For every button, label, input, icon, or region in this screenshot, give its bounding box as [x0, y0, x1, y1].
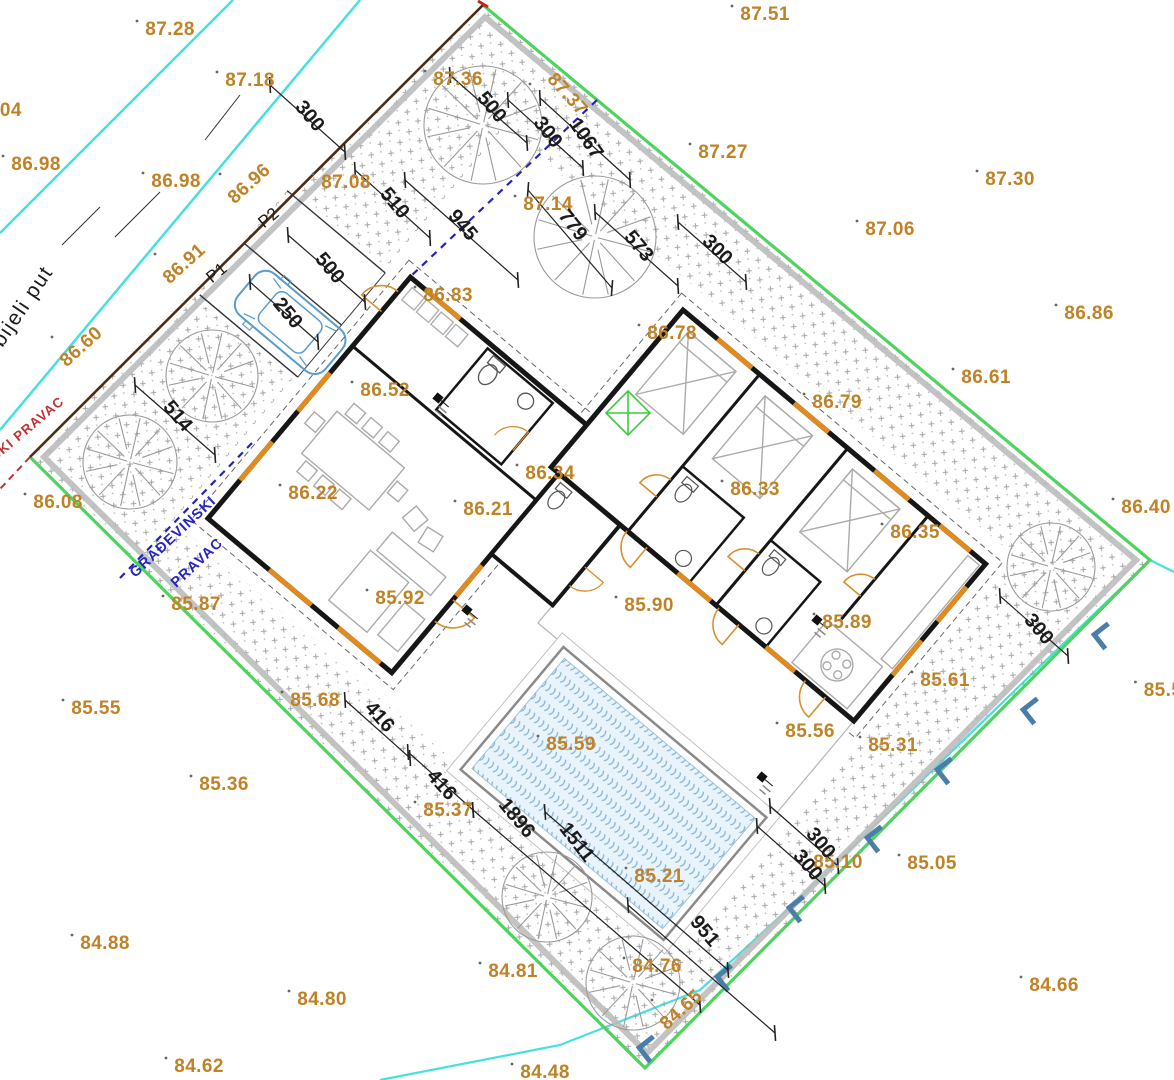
elevation-label: 87.27 — [698, 142, 748, 163]
elevation-point-dot — [537, 735, 540, 738]
elevation-label: 85.61 — [920, 670, 970, 691]
elevation-label: 86.34 — [525, 463, 575, 484]
elevation-point-dot — [288, 990, 291, 993]
elevation-label: 87.51 — [740, 4, 790, 25]
elevation-point-dot — [651, 999, 654, 1002]
elevation-point-dot — [162, 595, 165, 598]
elevation-point-dot — [856, 220, 859, 223]
leader-lines — [62, 95, 240, 245]
elevation-point-dot — [976, 170, 979, 173]
elevation-point-dot — [2, 155, 5, 158]
elevation-point-dot — [142, 172, 145, 175]
elevation-label: 85.87 — [171, 594, 221, 615]
elevation-point-dot — [281, 691, 284, 694]
elevation-label: 84.76 — [632, 956, 682, 977]
elevation-label: 86.96 — [224, 160, 275, 209]
elevation-label: 86.98 — [151, 171, 201, 192]
dimension-label: 300 — [290, 96, 328, 136]
site-plan-drawing: 87.2887.5187.1887.3687.3787.2787.30.0486… — [0, 0, 1174, 1080]
elevation-label: 86.52 — [360, 380, 410, 401]
elevation-point-dot — [859, 736, 862, 739]
elevation-label: 84.48 — [520, 1062, 570, 1080]
elevation-label: 85.36 — [199, 774, 249, 795]
elevation-point-dot — [71, 934, 74, 937]
elevation-label: 85.21 — [634, 866, 684, 887]
elevation-point-dot — [516, 464, 519, 467]
elevation-label: 85.68 — [290, 690, 340, 711]
elevation-point-dot — [312, 173, 315, 176]
elevation-point-dot — [366, 589, 369, 592]
elevation-point-dot — [190, 775, 193, 778]
elevation-label: 85.92 — [375, 588, 425, 609]
elevation-label: 85.05 — [907, 853, 957, 874]
elevation-label: 86.08 — [33, 492, 83, 513]
elevation-point-dot — [514, 195, 517, 198]
site-plan-canvas: 87.2887.5187.1887.3687.3787.2787.30.0486… — [0, 0, 1174, 1080]
elevation-point-dot — [165, 1057, 168, 1060]
elevation-point-dot — [414, 286, 417, 289]
regulation-dashed-line — [0, 457, 30, 489]
elevation-point-dot — [813, 613, 816, 616]
elevation-point-dot — [776, 722, 779, 725]
elevation-label: 85.89 — [822, 612, 872, 633]
elevation-label: 84.81 — [488, 961, 538, 982]
elevation-label: 86.86 — [1064, 303, 1114, 324]
elevation-label: 86.79 — [812, 392, 862, 413]
elevation-point-dot — [1134, 681, 1137, 684]
elevation-label: 86.21 — [463, 499, 513, 520]
elevation-label: .04 — [0, 100, 22, 121]
elevation-label: 86.91 — [159, 240, 210, 289]
elevation-point-dot — [615, 596, 618, 599]
elevation-point-dot — [898, 854, 901, 857]
elevation-label: 86.33 — [730, 479, 780, 500]
elevation-label: 85.55 — [71, 698, 121, 719]
elevation-point-dot — [638, 324, 641, 327]
elevation-point-dot — [154, 253, 157, 256]
elevation-point-dot — [881, 523, 884, 526]
elevation-point-dot — [216, 71, 219, 74]
elevation-label: 84.80 — [297, 989, 347, 1010]
elevation-point-dot — [731, 5, 734, 8]
elevation-label: 86.83 — [423, 285, 473, 306]
elevation-label: 84.62 — [174, 1056, 224, 1077]
benchmark-icon — [457, 604, 482, 628]
elevation-label: 87.08 — [321, 172, 371, 193]
elevation-point-dot — [454, 500, 457, 503]
elevation-label: 84.66 — [1029, 975, 1079, 996]
elevation-label: 86.22 — [288, 483, 338, 504]
elevation-point-dot — [952, 368, 955, 371]
elevation-label: 86.78 — [647, 323, 697, 344]
dimension-label: 500 — [310, 248, 348, 288]
elevation-label: 84.88 — [80, 933, 130, 954]
elevation-label: 87.18 — [225, 70, 275, 91]
elevation-label: 87.06 — [865, 219, 915, 240]
elevation-point-dot — [689, 143, 692, 146]
elevation-point-dot — [511, 1063, 514, 1066]
elevation-label: 85.56 — [785, 721, 835, 742]
elevation-point-dot — [136, 20, 139, 23]
elevation-label: 85.31 — [868, 735, 918, 756]
elevation-point-dot — [479, 962, 482, 965]
elevation-label: 87.28 — [145, 19, 195, 40]
elevation-point-dot — [24, 493, 27, 496]
elevation-label: 86.35 — [890, 522, 940, 543]
elevation-point-dot — [529, 83, 532, 86]
elevation-point-dot — [1055, 304, 1058, 307]
elevation-point-dot — [424, 70, 427, 73]
elevation-point-dot — [911, 671, 914, 674]
elevation-point-dot — [1020, 976, 1023, 979]
elevation-point-dot — [279, 484, 282, 487]
elevation-point-dot — [803, 393, 806, 396]
fence-bracket-icon — [1094, 624, 1119, 649]
elevation-point-dot — [62, 699, 65, 702]
elevation-label: 85.59 — [546, 734, 596, 755]
elevation-point-dot — [625, 867, 628, 870]
elevation-label: 87.36 — [433, 69, 483, 90]
elevation-point-dot — [721, 480, 724, 483]
elevation-point-dot — [351, 381, 354, 384]
elevation-point-dot — [51, 336, 54, 339]
road-name-label: bijeli put — [0, 262, 58, 351]
elevation-label: 87.30 — [985, 169, 1035, 190]
dimension-label: 945 — [443, 205, 481, 245]
elevation-label: 85.5 — [1144, 680, 1174, 701]
elevation-label: 86.98 — [11, 154, 61, 175]
elevation-point-dot — [219, 173, 222, 176]
fence-bracket-icon — [1023, 699, 1048, 724]
elevation-point-dot — [1112, 498, 1115, 501]
elevation-label: 86.60 — [56, 323, 107, 372]
elevation-label: 86.61 — [961, 367, 1011, 388]
elevation-point-dot — [414, 801, 417, 804]
elevation-label: 85.90 — [624, 595, 674, 616]
elevation-point-dot — [623, 957, 626, 960]
elevation-label: 85.37 — [423, 800, 473, 821]
elevation-label: 86.40 — [1121, 497, 1171, 518]
